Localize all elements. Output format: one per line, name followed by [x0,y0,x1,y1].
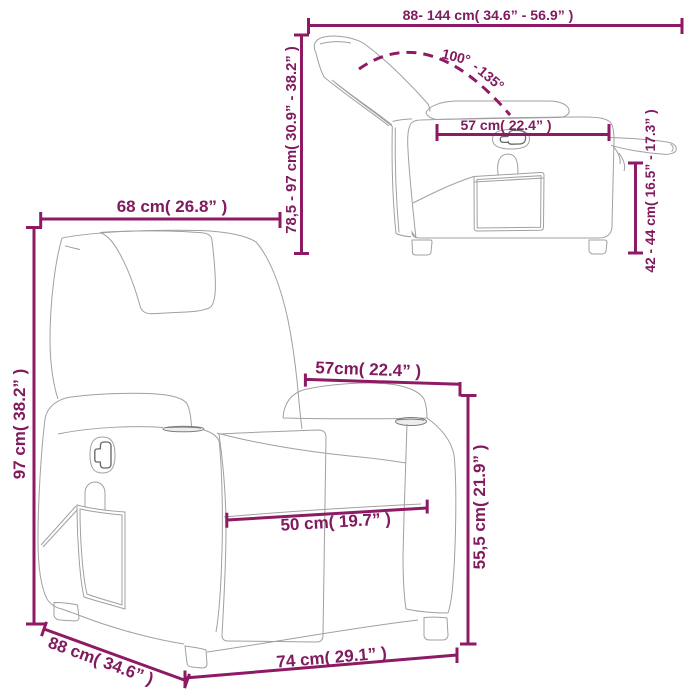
svg-text:57 cm( 22.4” ): 57 cm( 22.4” ) [460,117,551,133]
svg-text:78,5 - 97 cm( 30.9” - 38.2” ): 78,5 - 97 cm( 30.9” - 38.2” ) [284,46,300,234]
svg-text:57cm( 22.4” ): 57cm( 22.4” ) [315,358,421,381]
svg-text:74 cm( 29.1” ): 74 cm( 29.1” ) [276,643,388,671]
svg-text:97 cm( 38.2” ): 97 cm( 38.2” ) [10,369,29,480]
svg-text:100°: 100° [440,45,472,68]
svg-text:42 - 44 cm( 16.5” - 17.3” ): 42 - 44 cm( 16.5” - 17.3” ) [643,109,658,272]
svg-text:68 cm( 26.8” ): 68 cm( 26.8” ) [117,197,228,216]
svg-text:55,5 cm( 21.9” ): 55,5 cm( 21.9” ) [470,445,489,570]
svg-text:135°: 135° [475,63,507,94]
svg-text:88- 144 cm( 34.6” - 56.9” ): 88- 144 cm( 34.6” - 56.9” ) [403,7,574,23]
svg-text:50 cm( 19.7” ): 50 cm( 19.7” ) [280,509,391,535]
svg-text:88 cm( 34.6” ): 88 cm( 34.6” ) [46,633,156,689]
